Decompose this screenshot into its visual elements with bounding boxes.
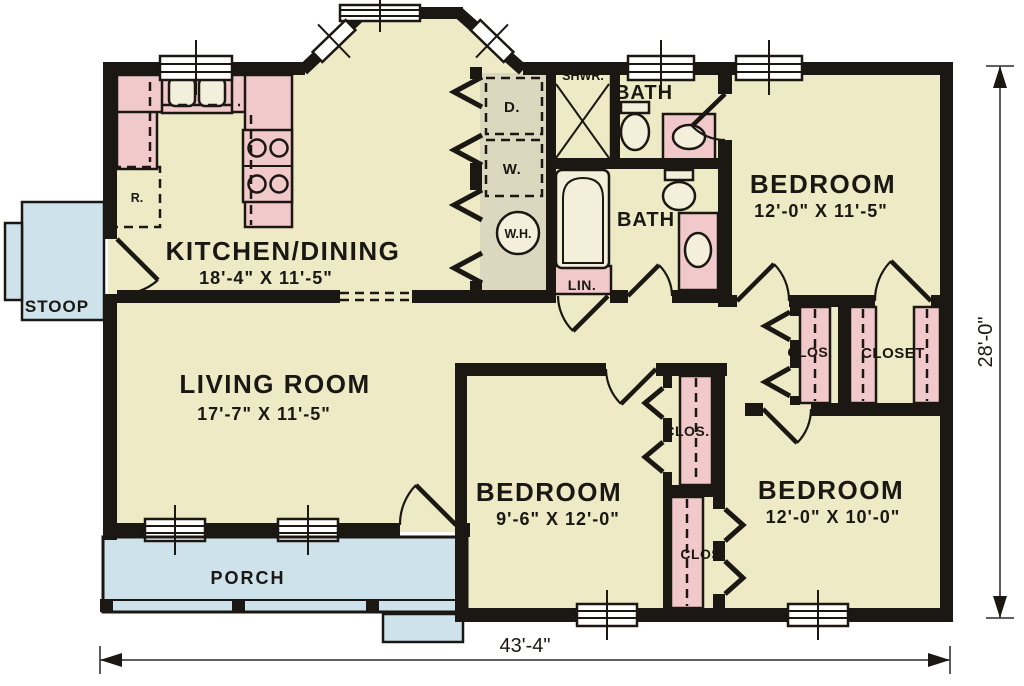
bedroom-middle-label: BEDROOM bbox=[476, 477, 622, 507]
sink-basin-right bbox=[199, 78, 225, 106]
toilet-bowl-upper bbox=[621, 114, 649, 150]
overall-width-dimension: 43'-4" bbox=[500, 635, 551, 657]
arrow-left bbox=[100, 653, 122, 667]
bedroom-bottom-right-label: BEDROOM bbox=[758, 475, 904, 505]
kitchen-dining-label: KITCHEN/DINING bbox=[166, 236, 401, 266]
floor-plan-page: 43'-4" 28'-0" KITCHEN/DINING 18'-4" X 11… bbox=[0, 0, 1024, 686]
toilet-tank-lower bbox=[665, 170, 693, 180]
kitchen-dining-dims: 18'-4" X 11'-5" bbox=[199, 268, 333, 288]
hall-closet-label: CLOS. bbox=[787, 344, 832, 360]
toilet-bowl-lower bbox=[663, 182, 695, 210]
dimension-depth: 28'-0" bbox=[975, 66, 1014, 618]
vanity-basin-lower bbox=[685, 233, 711, 267]
arrow-up bbox=[993, 66, 1007, 88]
bedroom-right-label: BEDROOM bbox=[750, 169, 896, 199]
sink-basin-left bbox=[169, 78, 195, 106]
overall-depth-dimension: 28'-0" bbox=[975, 317, 997, 368]
bedroom-middle-dims: 9'-6" X 12'-0" bbox=[496, 509, 620, 529]
dryer-label: D. bbox=[504, 99, 520, 116]
water-heater-label: W.H. bbox=[504, 227, 531, 241]
dimension-width: 43'-4" bbox=[100, 635, 950, 674]
porch-step bbox=[383, 614, 463, 642]
bath-upper-label: BATH bbox=[615, 82, 673, 104]
vanity-basin-upper bbox=[673, 125, 705, 149]
stoop-label: STOOP bbox=[25, 297, 89, 316]
living-room-label: LIVING ROOM bbox=[179, 369, 370, 399]
stoop-step bbox=[5, 223, 22, 300]
floor-plan-drawing: 43'-4" 28'-0" KITCHEN/DINING 18'-4" X 11… bbox=[0, 0, 1024, 686]
bedroom-closet-label: CLOSET bbox=[861, 345, 925, 362]
arrow-right bbox=[928, 653, 950, 667]
porch-label: PORCH bbox=[210, 568, 285, 588]
living-room-dims: 17'-7" X 11'-5" bbox=[197, 404, 331, 424]
bath-lower-label: BATH bbox=[617, 209, 675, 231]
refrigerator-label: R. bbox=[131, 191, 144, 205]
linen-label: LIN. bbox=[568, 277, 596, 293]
shower-label: SHWR. bbox=[562, 69, 604, 83]
middle-closet-lower-label: CLOS. bbox=[680, 546, 725, 562]
bedroom-right-dims: 12'-0" X 11'-5" bbox=[754, 201, 888, 221]
arrow-down bbox=[993, 596, 1007, 618]
middle-closet-upper-label: CLOS. bbox=[664, 423, 709, 439]
bedroom-bottom-right-dims: 12'-0" X 10'-0" bbox=[766, 507, 901, 527]
washer-label: W. bbox=[503, 161, 522, 178]
